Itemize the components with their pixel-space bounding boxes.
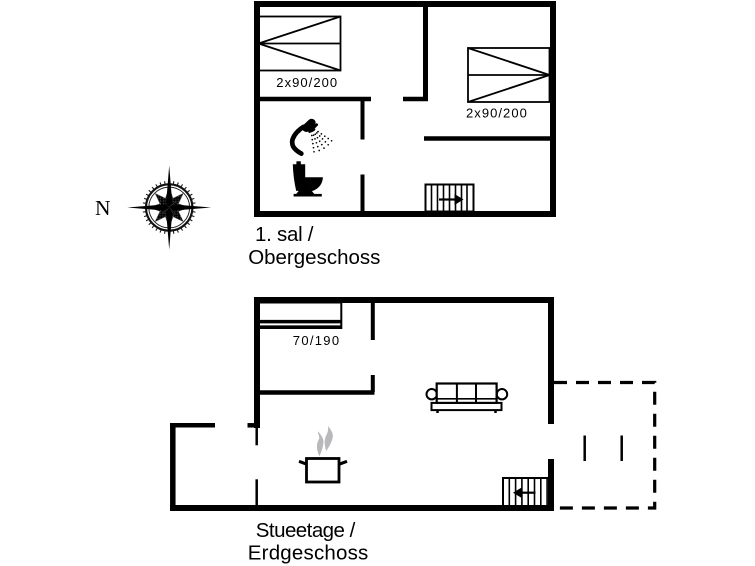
svg-text:2x90/200: 2x90/200 <box>276 75 338 90</box>
svg-text:Erdgeschoss: Erdgeschoss <box>248 542 369 565</box>
svg-text:Obergeschoss: Obergeschoss <box>248 246 380 269</box>
svg-text:1. sal /: 1. sal / <box>255 223 314 246</box>
svg-text:N: N <box>95 196 111 220</box>
svg-text:2x90/200: 2x90/200 <box>466 106 528 121</box>
svg-text:70/190: 70/190 <box>293 333 341 348</box>
svg-text:Stueetage /: Stueetage / <box>256 519 356 542</box>
